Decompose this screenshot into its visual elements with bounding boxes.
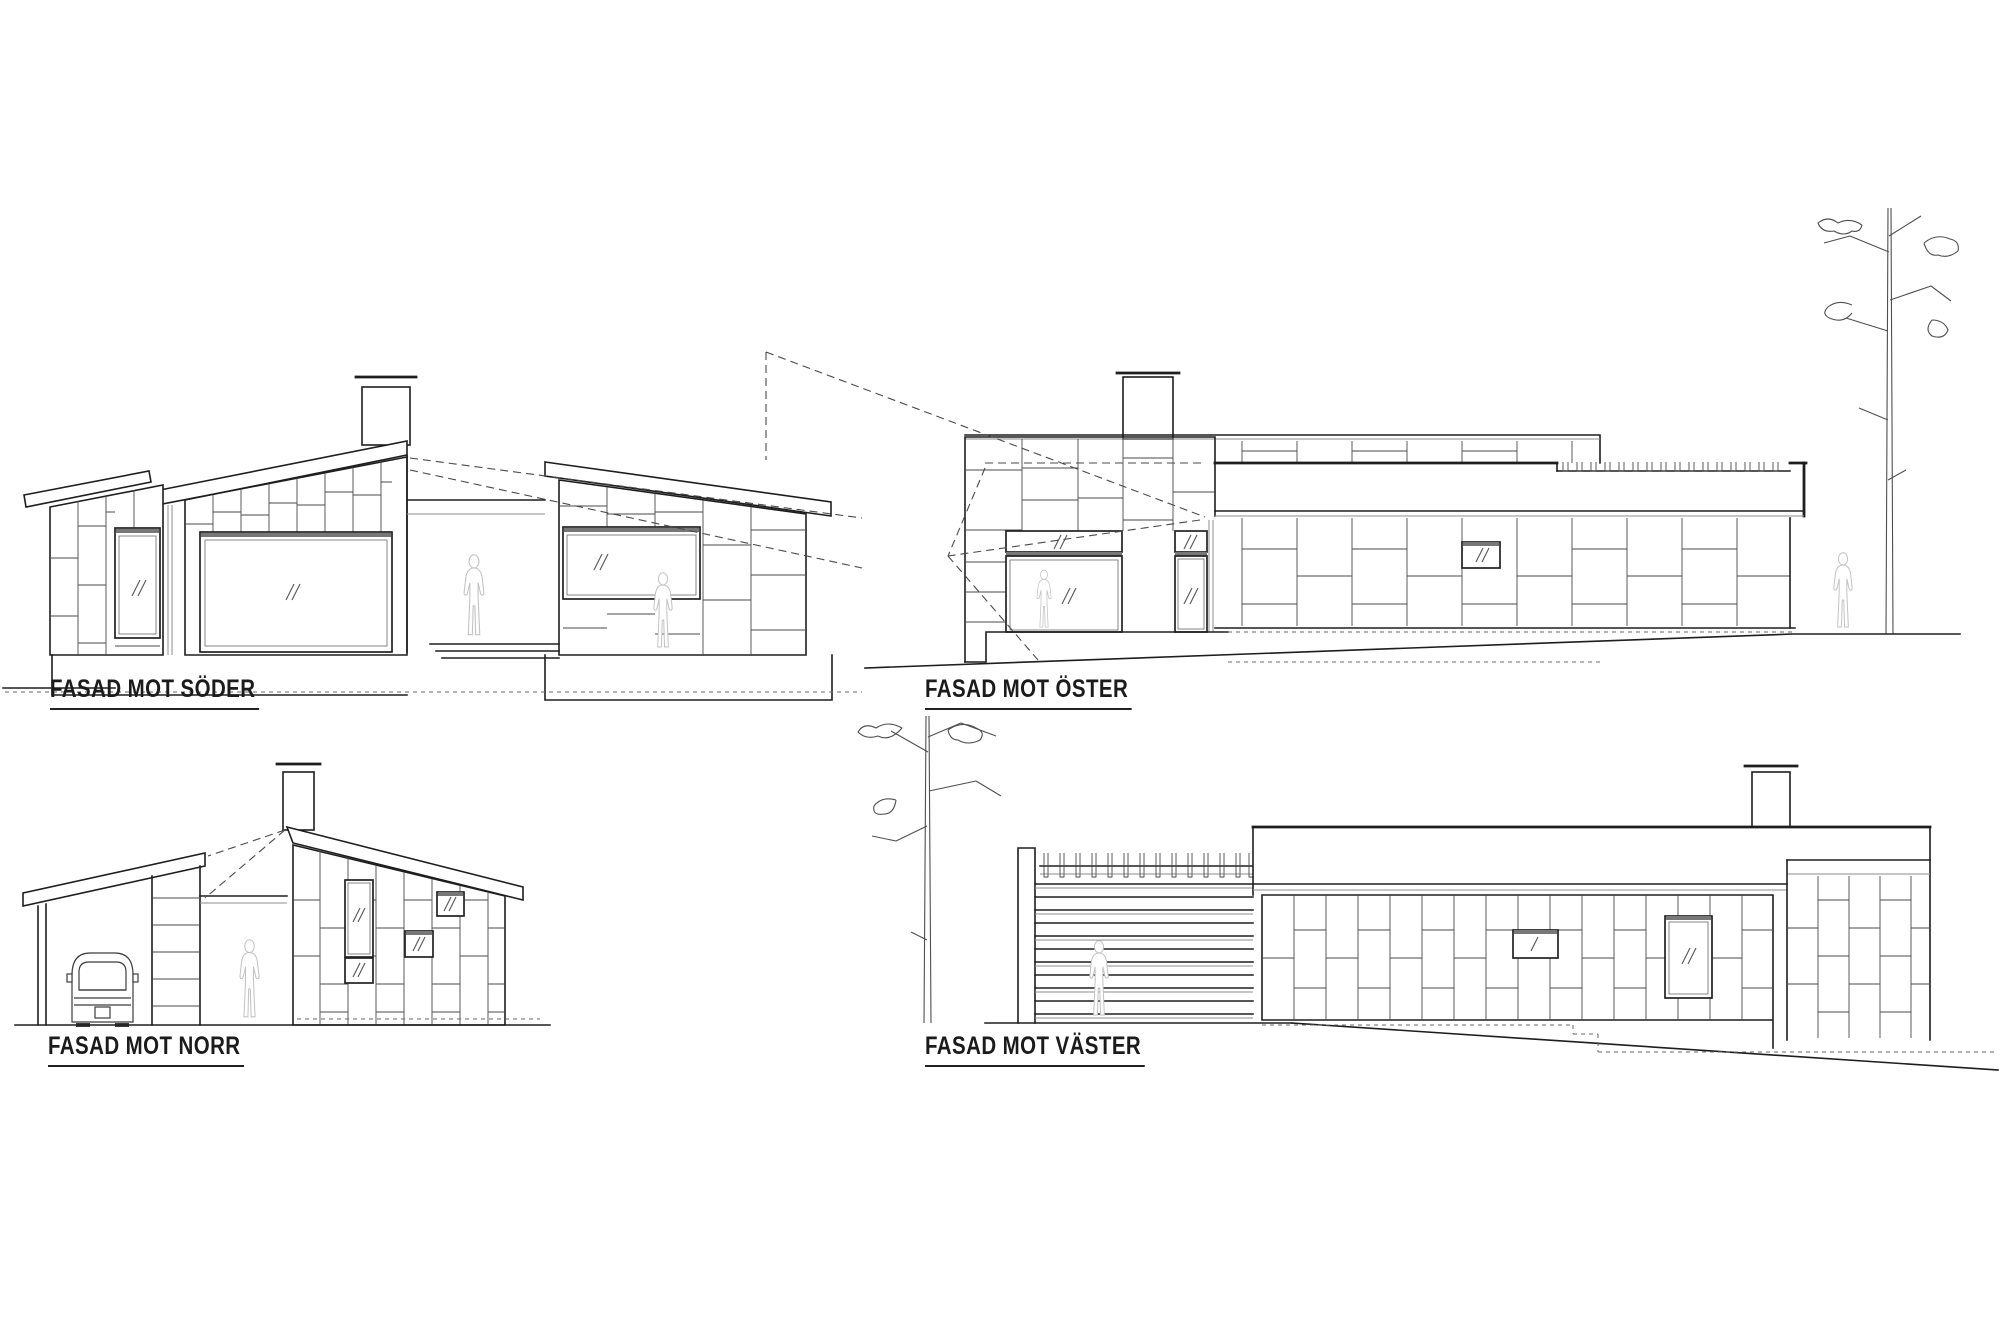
- north-elevation-label: FASAD MOT NORR: [48, 1032, 244, 1067]
- chimney-icon: [1117, 373, 1179, 439]
- east-glass-door: [1006, 554, 1122, 632]
- human-figure-icon: [1090, 941, 1108, 1015]
- west-elevation-label: FASAD MOT VÄSTER: [925, 1032, 1144, 1067]
- west-roof-fascia: [1253, 827, 1930, 1040]
- west-small-window: [1513, 930, 1558, 958]
- north-main-roof: [287, 827, 523, 900]
- chimney-icon: [277, 764, 320, 830]
- horizontal-slats: [1035, 884, 1253, 1014]
- west-elevation-drawing: [858, 716, 1998, 1070]
- carport-post: [38, 904, 46, 1025]
- roof-joists: [1044, 853, 1253, 877]
- roof-joists: [1563, 462, 1778, 471]
- human-figure-icon: [240, 940, 259, 1017]
- ground-line: [865, 634, 1960, 668]
- east-roof-fascia: [1215, 462, 1806, 516]
- human-figure-icon: [464, 555, 484, 635]
- chimney-icon: [1745, 766, 1797, 827]
- east-elevation-drawing: [766, 208, 1960, 668]
- east-side-window: [1175, 554, 1207, 632]
- elevation-sheet: FASAD MOT SÖDER FASAD MOT ÖSTER FASAD MO…: [0, 0, 2000, 1339]
- south-left-window: [115, 528, 160, 638]
- elevations-drawing: [0, 0, 2000, 1339]
- south-picture-window: [200, 532, 392, 652]
- human-figure-icon: [1834, 553, 1852, 627]
- pine-tree-icon: [858, 716, 1001, 1023]
- north-windows: [345, 880, 464, 983]
- east-small-window: [1462, 542, 1500, 568]
- south-right-window: [563, 527, 700, 599]
- chimney-icon: [356, 377, 416, 445]
- east-elevation-label: FASAD MOT ÖSTER: [925, 675, 1131, 710]
- south-elevation-drawing: [3, 377, 862, 700]
- north-elevation-drawing: [15, 764, 550, 1025]
- east-transom-window: [1006, 531, 1207, 552]
- slatted-garage-wall: [1018, 848, 1253, 1023]
- south-elevation-label: FASAD MOT SÖDER: [50, 675, 259, 710]
- car-icon: [67, 953, 138, 1025]
- west-tall-window: [1665, 916, 1712, 998]
- porch-steps: [430, 644, 559, 658]
